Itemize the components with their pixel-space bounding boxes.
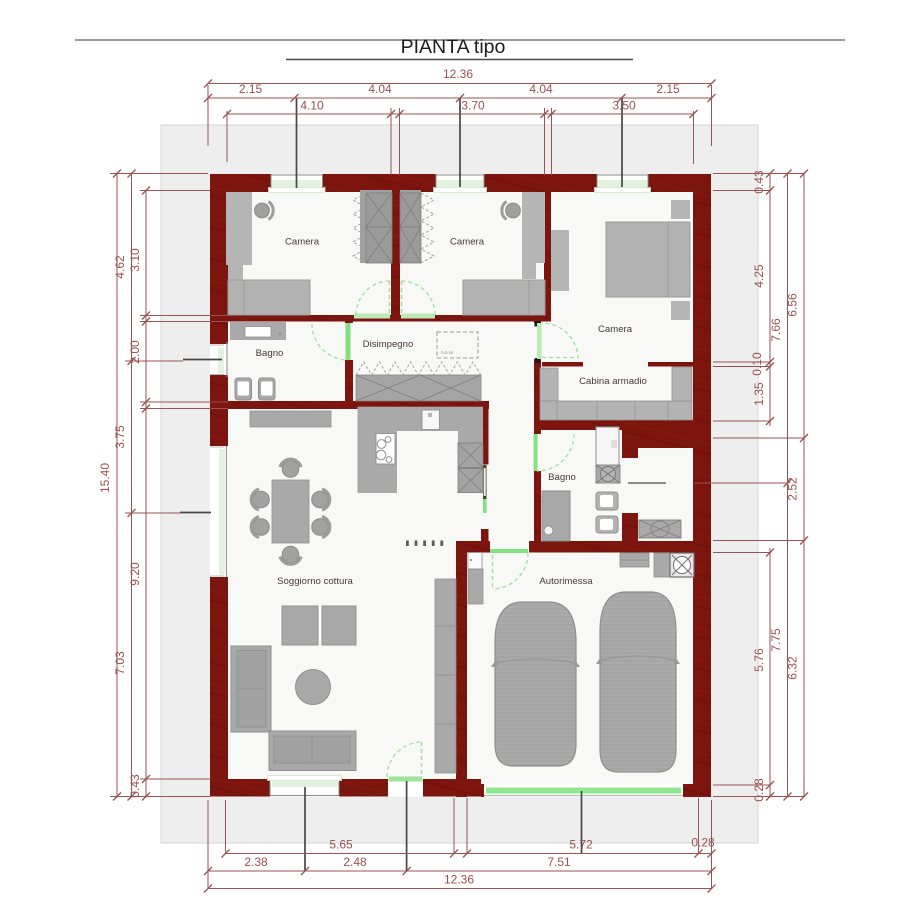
svg-text:0.43: 0.43 [128, 774, 142, 798]
svg-text:Camera: Camera [598, 324, 633, 335]
svg-text:PIANTA tipo: PIANTA tipo [401, 36, 506, 58]
svg-text:2.48: 2.48 [343, 855, 367, 869]
svg-text:7.75: 7.75 [769, 628, 783, 652]
svg-text:3.75: 3.75 [113, 425, 127, 449]
svg-text:3.10: 3.10 [128, 248, 142, 272]
svg-text:3.70: 3.70 [461, 99, 485, 113]
svg-text:4.62: 4.62 [113, 255, 127, 279]
svg-text:0.10: 0.10 [750, 352, 764, 376]
svg-text:7.51: 7.51 [547, 855, 571, 869]
svg-text:2.52: 2.52 [786, 477, 800, 501]
svg-text:botola: botola [441, 350, 454, 355]
svg-text:12.36: 12.36 [444, 873, 474, 887]
svg-text:Bagno: Bagno [256, 348, 284, 359]
svg-text:9.20: 9.20 [128, 562, 142, 586]
svg-text:4.10: 4.10 [300, 99, 324, 113]
svg-text:3.50: 3.50 [612, 99, 636, 113]
svg-text:7.66: 7.66 [769, 318, 783, 342]
svg-text:Soggiorno cottura: Soggiorno cottura [277, 576, 353, 587]
svg-text:5.76: 5.76 [752, 648, 766, 672]
svg-text:2.38: 2.38 [244, 855, 268, 869]
svg-text:Disimpegno: Disimpegno [363, 339, 414, 350]
svg-text:1.35: 1.35 [752, 382, 766, 406]
svg-text:2.15: 2.15 [239, 82, 263, 96]
svg-text:15.40: 15.40 [98, 463, 112, 493]
svg-text:0.28: 0.28 [752, 778, 766, 802]
svg-text:6.32: 6.32 [786, 656, 800, 680]
svg-text:Bagno: Bagno [548, 472, 576, 483]
svg-text:7.03: 7.03 [113, 651, 127, 675]
svg-text:Autorimessa: Autorimessa [539, 576, 593, 587]
svg-text:12.36: 12.36 [443, 67, 473, 81]
svg-text:5.65: 5.65 [329, 838, 353, 852]
svg-text:2.00: 2.00 [128, 340, 142, 364]
svg-text:0.43: 0.43 [752, 170, 766, 194]
svg-text:4.25: 4.25 [752, 264, 766, 288]
svg-text:0.28: 0.28 [691, 836, 715, 850]
svg-text:Camera: Camera [450, 237, 485, 248]
svg-text:Camera: Camera [285, 237, 320, 248]
svg-text:5.72: 5.72 [569, 838, 593, 852]
svg-text:6.56: 6.56 [786, 293, 800, 317]
svg-text:4.04: 4.04 [529, 82, 553, 96]
svg-text:Cabina armadio: Cabina armadio [579, 376, 647, 387]
svg-text:4.04: 4.04 [368, 82, 392, 96]
svg-text:2.15: 2.15 [656, 82, 680, 96]
